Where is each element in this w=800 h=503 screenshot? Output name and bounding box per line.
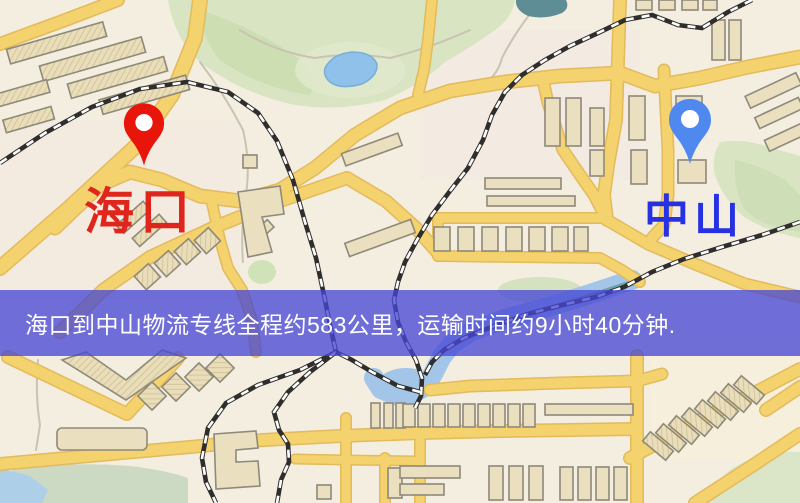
route-banner: 海口到中山物流专线全程约583公里，运输时间约9小时40分钟. xyxy=(0,290,800,356)
zhongshan-map-pin-icon xyxy=(667,98,713,166)
haikou-label: 海口 xyxy=(84,172,196,244)
zhongshan-label: 中山 xyxy=(644,180,744,245)
map-background xyxy=(0,0,800,503)
haikou-map-pin-icon xyxy=(122,102,166,168)
map: 海口到中山物流专线全程约583公里，运输时间约9小时40分钟. 海口 中山 xyxy=(0,0,800,503)
route-banner-text: 海口到中山物流专线全程约583公里，运输时间约9小时40分钟. xyxy=(0,306,676,340)
